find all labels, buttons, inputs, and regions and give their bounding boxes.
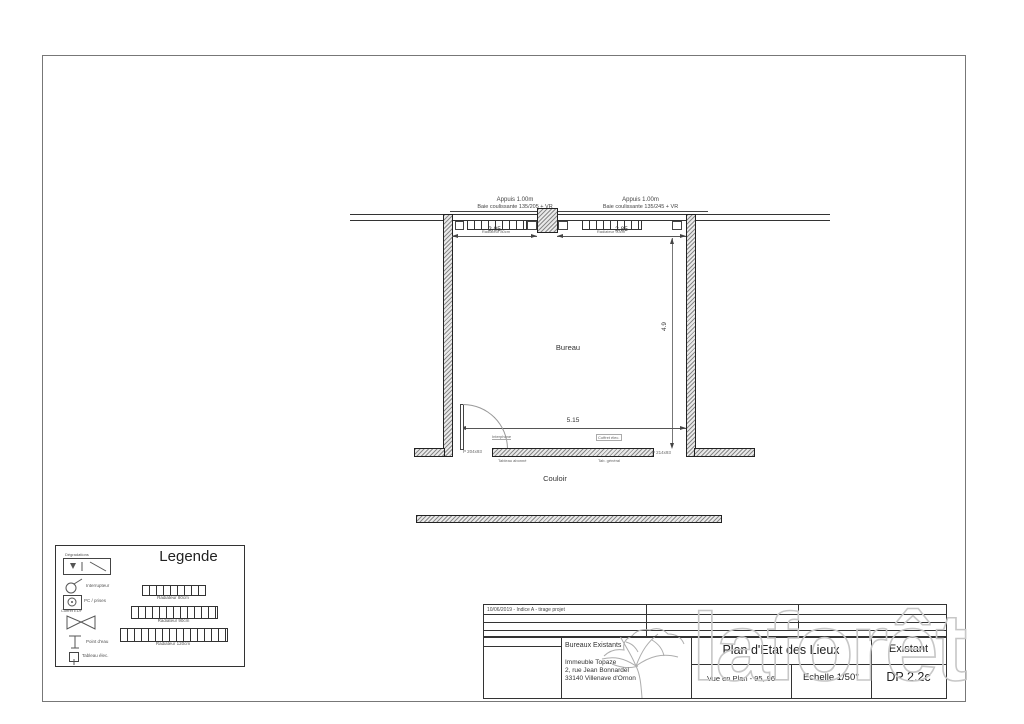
legend-item-label: Point d'eau	[86, 639, 108, 644]
titleblock-col-line	[561, 637, 562, 698]
dim-arrow	[680, 234, 686, 238]
legend-radiator-label: Radiateur 80cm	[142, 595, 204, 600]
plan-document: Appuis 1.00m Baie coulissante 135/205 + …	[0, 0, 1024, 724]
dim-line-vertical	[672, 238, 673, 446]
bowtie-icon	[65, 614, 97, 631]
facade-pillar	[537, 208, 558, 233]
project-address-2: 2, rue Jean Bonnardel	[565, 667, 629, 674]
degradations-symbol	[63, 558, 111, 575]
legend-radiator-label: Radiateur 90cm	[131, 618, 216, 623]
panel-icon	[70, 658, 78, 666]
project-name: Bureaux Existants	[565, 642, 621, 649]
dim-line	[557, 236, 686, 237]
dim-4-9: 4.9	[661, 322, 668, 331]
project-address-3: 33140 Villenave d'Ornon	[565, 675, 636, 682]
window-right-desc: Baie coulissante 135/245 + VR	[573, 204, 708, 211]
window-right-annotation: Appuis 1.00m Baie coulissante 135/245 + …	[573, 197, 708, 212]
legend-item-label: Dégradations	[65, 552, 89, 557]
window-right-sill: Appuis 1.00m	[573, 197, 708, 204]
bottom-wall-stub-left	[414, 448, 445, 457]
tge-note: Tab. général	[598, 458, 620, 463]
project-address-1: Immeuble Topaze	[565, 659, 616, 666]
dim-arrow	[452, 234, 458, 238]
window-left-annotation: Appuis 1.00m Baie coulissante 135/205 + …	[450, 197, 580, 212]
water-icon	[67, 634, 83, 651]
dim-2-05: 2.05	[452, 226, 537, 233]
interphone-note: Interphone	[492, 434, 511, 440]
coffret-note: Coffret élec.	[596, 434, 622, 441]
legend-radiator-bar	[120, 628, 228, 642]
window-left-sill: Appuis 1.00m	[450, 197, 580, 204]
door-right-label: P 214x93	[652, 450, 671, 455]
tableau-note: Tableau abonné	[498, 458, 526, 463]
room-wall-left	[443, 214, 453, 457]
bottom-wall-main	[492, 448, 654, 457]
dim-line	[452, 236, 537, 237]
bottom-wall-stub-right	[694, 448, 755, 457]
legend-box: Legende Dégradations Interrupteur P	[55, 545, 245, 667]
dim-arrow	[557, 234, 563, 238]
coffret-symbol	[65, 614, 97, 636]
dim-arrow	[670, 238, 674, 244]
corridor-label: Couloir	[515, 474, 595, 483]
legend-radiator-label: Radiateur 120cm	[120, 641, 226, 646]
door-left-label: P 204x93	[463, 449, 482, 454]
dim-arrow	[531, 234, 537, 238]
switch-icon	[64, 578, 86, 594]
room-wall-right	[686, 214, 696, 457]
revision-entry: 10/06/2019 - Indice A - tirage projet	[487, 607, 565, 613]
legend-item-label: Interrupteur	[86, 583, 109, 588]
tableau-symbol	[69, 652, 79, 662]
degradations-icon	[64, 559, 110, 574]
dim-arrow	[670, 443, 674, 449]
titleblock-row-line	[484, 646, 561, 647]
window-left-desc: Baie coulissante 135/205 + VR	[450, 204, 580, 211]
laforet-watermark: laforêt	[692, 593, 964, 703]
legend-title: Legende	[136, 548, 241, 565]
legend-item-label: Tableau élec.	[82, 653, 109, 658]
dim-2-85: 2.85	[557, 226, 686, 233]
legend-item-label: PC / prises	[84, 598, 106, 603]
corridor-wall	[416, 515, 722, 523]
legend-item-label: Coffret EDF	[61, 608, 82, 613]
room-label: Bureau	[528, 343, 608, 352]
dim-arrow	[680, 426, 686, 430]
